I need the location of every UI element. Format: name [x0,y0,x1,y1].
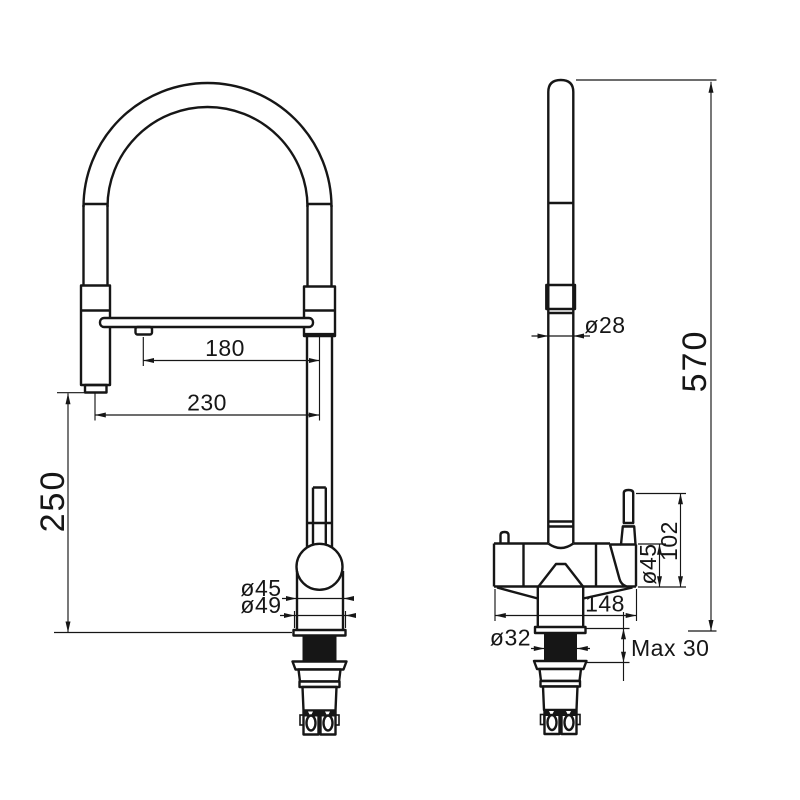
spray-head-sleeve [81,286,110,386]
dim-230: 230 [187,390,227,416]
hose-arch-outer [84,83,332,207]
dim-28: ø28 [584,312,625,338]
handle-cone [610,545,627,587]
tube-collar-side [546,285,575,309]
dim-max30: Max 30 [631,635,709,661]
base-flange-side [535,627,586,633]
dim-49-front: ø49 [240,592,281,618]
dim-180: 180 [205,335,245,361]
aerator-nub [136,327,153,335]
dim-148: 148 [585,591,625,617]
base-flange-front [294,630,346,636]
riser-tube-side [548,80,573,543]
gasket-side [544,633,577,661]
technical-drawing-canvas: 180 230 250 ø45 ø49 [0,0,800,800]
spout-bar [100,318,313,327]
dim-570: 570 [676,330,714,393]
deck-column-side [538,587,583,628]
tube-body-arc [548,544,573,549]
gasket-front [303,636,337,662]
spout-base-pentagon [539,564,584,587]
neck-front [299,670,341,682]
hose-tube-left [84,205,108,286]
spray-head-tip [85,385,107,393]
dim-line-49f [280,611,356,628]
hose-tube-right [308,205,332,287]
handle-lever-lower [621,527,636,545]
tube-joint-lines [548,522,573,527]
ball-joint [297,544,343,590]
faucet-drawing: 180 230 250 ø45 ø49 [0,0,800,800]
dim-45-side: ø45 [635,543,661,584]
mounting-nut-front [303,687,337,711]
hose-arch-inner [108,107,308,207]
dim-32: ø32 [490,625,531,651]
neck-side [540,669,582,681]
mounting-nut-side [543,687,578,711]
handle-stick-front [313,488,326,547]
dim-250: 250 [34,470,72,533]
side-view-dimensions: ø28 570 102 ø45 148 ø32 Max 30 [490,80,717,681]
handle-lever-upper [624,490,633,523]
body-top-nub [501,532,509,544]
